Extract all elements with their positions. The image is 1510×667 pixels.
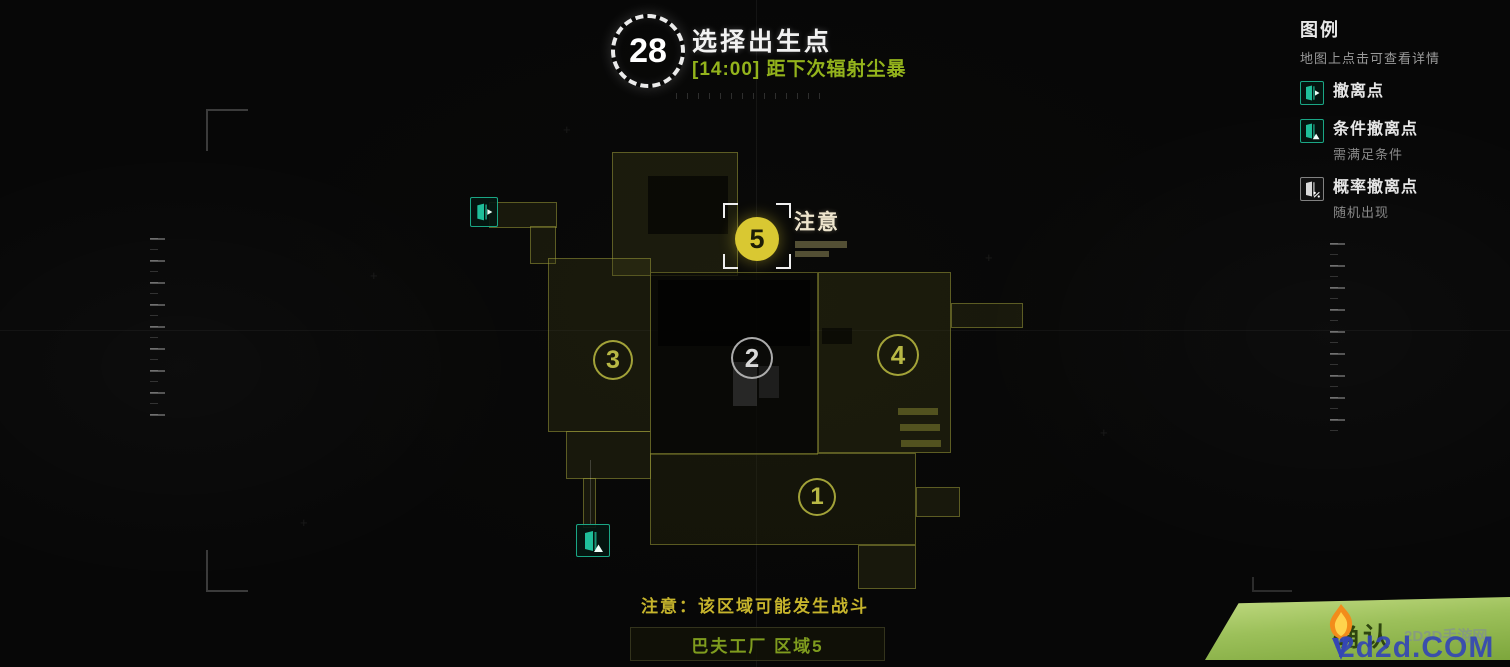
map-corridor-west bbox=[489, 202, 557, 228]
map-extraction-point-icon[interactable] bbox=[470, 197, 498, 227]
texture-plus-mark bbox=[370, 268, 378, 283]
zone5-detail-text-bar bbox=[795, 251, 829, 257]
texture-plus-mark bbox=[985, 250, 993, 265]
map-zone4-structure bbox=[822, 328, 852, 344]
legend-title: 图例 bbox=[1300, 16, 1500, 42]
zone-number: 2 bbox=[745, 343, 759, 374]
area-name-box: 巴夫工厂 区域5 bbox=[630, 627, 885, 661]
extraction-door-icon bbox=[1300, 81, 1324, 105]
legend-label-probability-extraction: 概率撤离点 bbox=[1333, 177, 1418, 199]
map-zone4-detail-bar bbox=[901, 440, 941, 447]
map-zone4-detail-bar bbox=[898, 408, 938, 415]
map-legend: 图例 地图上点击可查看详情 撤离点 bbox=[1300, 16, 1500, 221]
spawn-zone-marker-5[interactable]: 5 bbox=[735, 217, 779, 261]
radiation-storm-countdown: [14:00] 距下次辐射尘暴 bbox=[692, 54, 907, 81]
conditional-extraction-door-icon bbox=[1300, 119, 1324, 143]
legend-sub-probability-extraction: 随机出现 bbox=[1333, 202, 1418, 221]
countdown-timer-ring: 28 bbox=[611, 14, 685, 88]
texture-plus-mark bbox=[300, 515, 308, 530]
left-scale-ruler bbox=[150, 238, 165, 416]
legend-item-probability-extraction: 概率撤离点 随机出现 bbox=[1300, 177, 1500, 221]
zone5-detail-text-bar bbox=[795, 241, 847, 248]
zone-number: 5 bbox=[749, 224, 764, 255]
frame-corner-top-left bbox=[206, 109, 248, 151]
right-scale-ruler bbox=[1330, 243, 1345, 435]
top-tick-row bbox=[676, 93, 828, 99]
map-zone4-detail-bar bbox=[900, 424, 940, 431]
spawn-zone-marker-2[interactable]: 2 bbox=[731, 337, 773, 379]
map-region-zone1-south-ext bbox=[858, 545, 916, 589]
confirm-button-label: 确认 bbox=[1333, 617, 1393, 654]
spawn-zone-marker-3[interactable]: 3 bbox=[593, 340, 633, 380]
spawn-zone-marker-4[interactable]: 4 bbox=[877, 334, 919, 376]
spawn-select-screen: 28 选择出生点 [14:00] 距下次辐射尘暴 图例 地图上点击可查看详情 撤… bbox=[0, 0, 1510, 667]
spawn-zone-marker-1[interactable]: 1 bbox=[798, 478, 836, 516]
page-title: 选择出生点 bbox=[692, 22, 832, 58]
legend-item-conditional-extraction: 条件撤离点 需满足条件 bbox=[1300, 119, 1500, 163]
legend-item-extraction: 撤离点 bbox=[1300, 81, 1500, 105]
legend-label-extraction: 撤离点 bbox=[1333, 81, 1384, 103]
area-name-label: 巴夫工厂 区域5 bbox=[691, 632, 823, 657]
map-conditional-extraction-point-icon[interactable] bbox=[576, 524, 610, 557]
legend-label-conditional-extraction: 条件撤离点 bbox=[1333, 119, 1418, 141]
map-building-inner-block bbox=[648, 176, 728, 234]
texture-plus-mark bbox=[1100, 425, 1108, 440]
frame-corner-bottom-left bbox=[206, 550, 248, 592]
probability-extraction-door-icon bbox=[1300, 177, 1324, 201]
map-connector-line bbox=[590, 460, 591, 524]
selected-zone-warning-label: 注意 bbox=[794, 206, 840, 236]
texture-plus-mark bbox=[563, 122, 571, 137]
zone-number: 3 bbox=[606, 346, 620, 375]
countdown-timer-value: 28 bbox=[629, 32, 667, 71]
map-region-zone1 bbox=[650, 453, 916, 545]
map-region-zone3-lower bbox=[566, 431, 651, 479]
zone-number: 4 bbox=[891, 340, 905, 371]
map-region-zone1-east-ext bbox=[916, 487, 960, 517]
map-zone2-inner-block bbox=[658, 280, 810, 346]
zone-number: 1 bbox=[810, 483, 823, 511]
confirm-button[interactable]: 确认 bbox=[1205, 597, 1510, 660]
legend-sub-conditional-extraction: 需满足条件 bbox=[1333, 144, 1418, 163]
legend-hint: 地图上点击可查看详情 bbox=[1300, 48, 1500, 67]
map-corridor-east bbox=[951, 303, 1023, 328]
button-deco-line bbox=[1252, 577, 1292, 592]
